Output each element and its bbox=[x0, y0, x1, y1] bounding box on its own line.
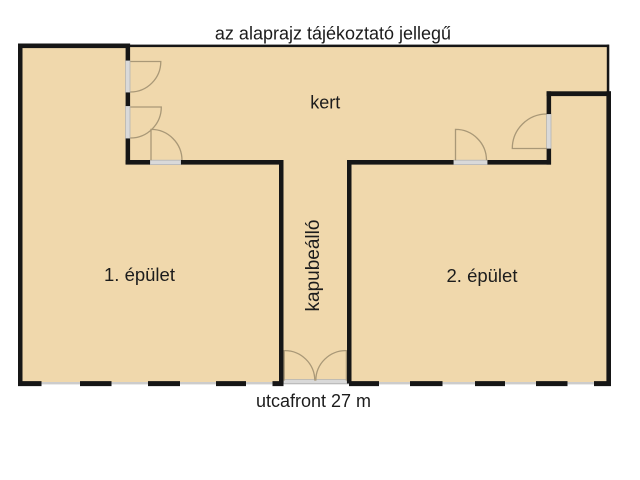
svg-text:kapubeálló: kapubeálló bbox=[303, 220, 324, 312]
svg-text:1. épület: 1. épület bbox=[104, 264, 175, 285]
svg-text:kert: kert bbox=[310, 93, 340, 113]
svg-text:utcafront 27 m: utcafront 27 m bbox=[256, 391, 371, 411]
svg-text:2. épület: 2. épület bbox=[447, 265, 518, 286]
svg-text:az alaprajz tájékoztató jelleg: az alaprajz tájékoztató jellegű bbox=[215, 24, 451, 44]
